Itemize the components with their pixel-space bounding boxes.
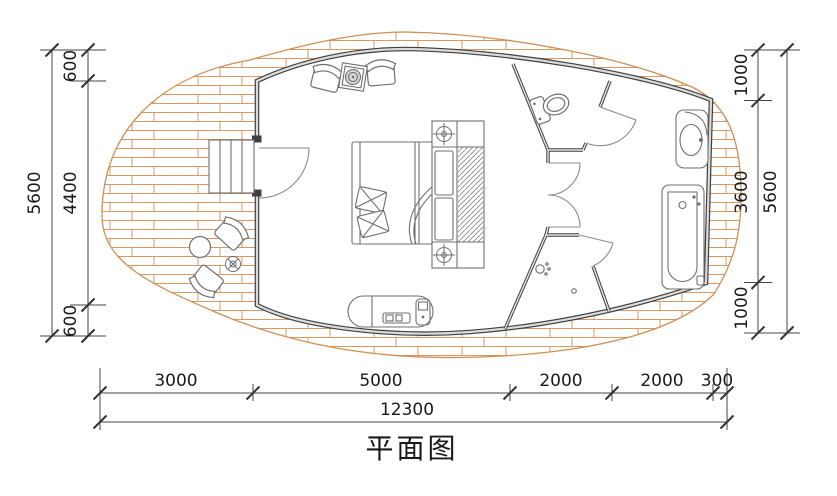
dim-left-seg-2: 600	[61, 305, 81, 337]
wardrobe-hanging-rail	[458, 148, 483, 242]
dim-right-seg-0: 1000	[732, 53, 752, 96]
washbasin	[676, 110, 708, 168]
dim-bottom-seg-3: 2000	[640, 371, 683, 391]
floor-plan-page: 600 4400 600 5600 1000 3600 1000 5600 30…	[0, 0, 837, 496]
wardrobe	[432, 121, 484, 268]
dim-left-seg-1: 4400	[61, 171, 81, 214]
bathtub	[662, 185, 704, 289]
dimension-bottom-labels: 3000 5000 2000 2000 300 12300	[154, 371, 733, 420]
dimension-right-labels: 1000 3600 1000 5600	[732, 53, 781, 329]
bed	[352, 142, 433, 244]
tv-console	[348, 296, 433, 327]
drawing-title: 平面图	[365, 432, 458, 465]
dim-right-overall: 5600	[761, 170, 781, 213]
dim-bottom-overall: 12300	[380, 400, 434, 420]
dimension-left-labels: 600 4400 600 5600	[25, 50, 81, 337]
dim-right-seg-1: 3600	[732, 170, 752, 213]
potted-plant-icon	[226, 257, 241, 272]
dim-bottom-seg-1: 5000	[359, 371, 402, 391]
outdoor-table	[190, 237, 211, 258]
dim-bottom-seg-0: 3000	[154, 371, 197, 391]
dim-left-overall: 5600	[25, 171, 45, 214]
floor-plan-drawing: 600 4400 600 5600 1000 3600 1000 5600 30…	[0, 0, 837, 496]
dim-bottom-seg-4: 300	[701, 371, 733, 391]
armchair-right	[364, 58, 397, 86]
side-table	[339, 63, 368, 92]
dim-left-seg-0: 600	[61, 50, 81, 82]
entry-steps	[209, 140, 254, 193]
dim-bottom-seg-2: 2000	[539, 371, 582, 391]
dim-right-seg-2: 1000	[732, 286, 752, 329]
